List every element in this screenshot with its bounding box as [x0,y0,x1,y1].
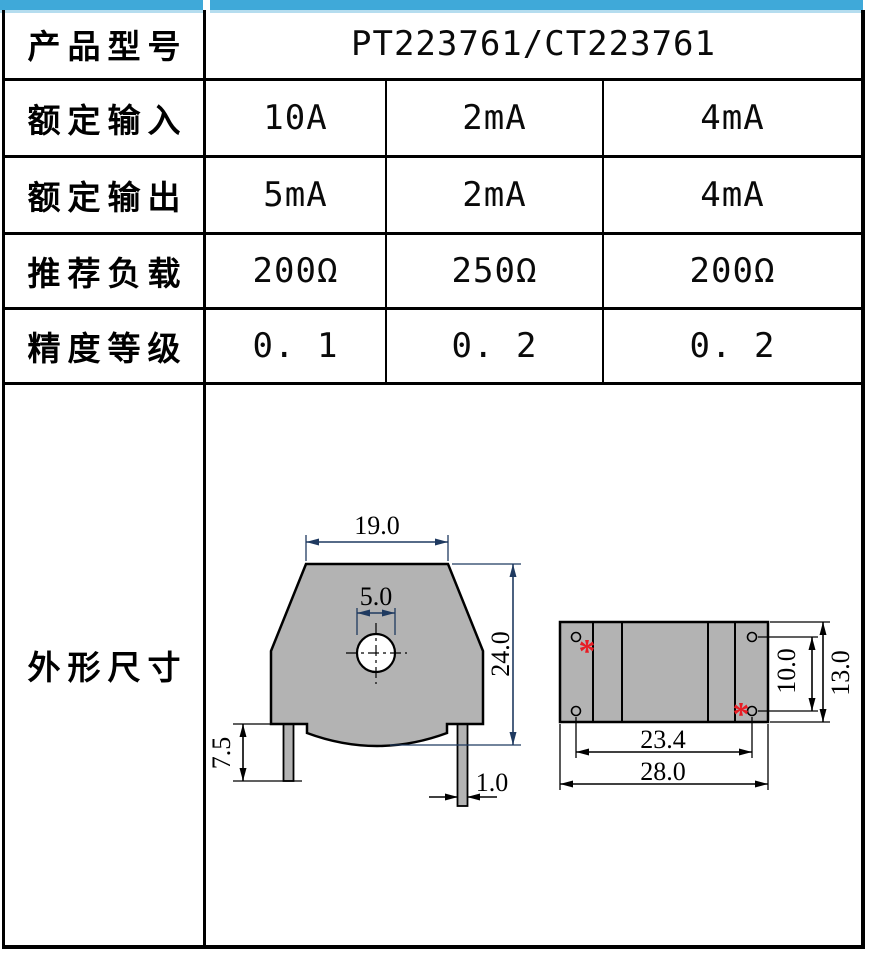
front-hole [357,634,395,672]
arrowhead [809,698,816,711]
rated-input-value-3: 4mA [604,81,861,155]
arrowhead [809,637,816,650]
dim-overall-width: 28.0 [640,757,686,786]
table-border-right [861,10,865,949]
rated-input-value-1: 10A [206,81,385,155]
front-left-pin [284,723,294,781]
product-model-value: PT223761/CT223761 [206,10,869,78]
spec-sheet: 产品型号 PT223761/CT223761 额定输入 10A 2mA 4mA … [0,0,869,953]
dim-height: 24.0 [486,631,515,677]
arrowhead [357,610,370,617]
polarity-marker-1: * [579,633,596,670]
polarity-marker-2: * [733,696,750,733]
arrowhead [739,749,752,756]
arrowhead [240,724,247,737]
arrowhead [435,539,448,546]
arrowhead [510,732,517,745]
dim-pin-row-span: 10.0 [772,648,801,694]
arrowhead [382,610,395,617]
accuracy-class-value-3: 0. 2 [604,310,861,382]
recommended-load-value-2: 250Ω [387,235,602,307]
rated-input-label: 额定输入 [5,81,203,155]
arrowhead [467,794,480,801]
pin-hole-top-right [748,633,757,642]
pin-hole-bottom-right [748,707,757,716]
front-right-pin [458,723,468,806]
product-model-label: 产品型号 [5,10,203,78]
arrowhead [510,564,517,577]
rated-output-label: 额定输出 [5,158,203,232]
accuracy-class-label: 精度等级 [5,310,203,382]
arrowhead [755,781,768,788]
arrowhead [306,539,319,546]
top-body [560,622,768,722]
dim-top-width: 19.0 [354,511,400,540]
arrowhead [445,794,458,801]
front-body [271,564,483,746]
arrowhead [576,749,589,756]
arrowhead [560,781,573,788]
pin-hole-top-left [572,633,581,642]
front-view-drawing: 19.0 5.0 24.0 7.5 [207,511,521,806]
rated-output-value-3: 4mA [604,158,861,232]
dim-pin-span: 23.4 [640,725,686,754]
arrowhead [820,622,827,635]
top-view-drawing: * * 23.4 28.0 10.0 [560,622,855,790]
arrowhead [820,709,827,722]
accuracy-class-value-1: 0. 1 [206,310,385,382]
arrowhead [240,768,247,781]
rated-output-value-1: 5mA [206,158,385,232]
accuracy-class-value-2: 0. 2 [387,310,602,382]
dim-pin-length: 7.5 [207,737,236,770]
rated-output-value-2: 2mA [387,158,602,232]
dim-pin-width: 1.0 [476,768,509,797]
pin-hole-bottom-left [572,707,581,716]
dim-hole-width: 5.0 [360,582,393,611]
dim-overall-depth: 13.0 [826,650,855,696]
recommended-load-label: 推荐负载 [5,235,203,307]
outline-dimensions-label: 外形尺寸 [5,385,203,945]
table-border-bottom [2,945,865,949]
recommended-load-value-1: 200Ω [206,235,385,307]
rated-input-value-2: 2mA [387,81,602,155]
recommended-load-value-3: 200Ω [604,235,861,307]
